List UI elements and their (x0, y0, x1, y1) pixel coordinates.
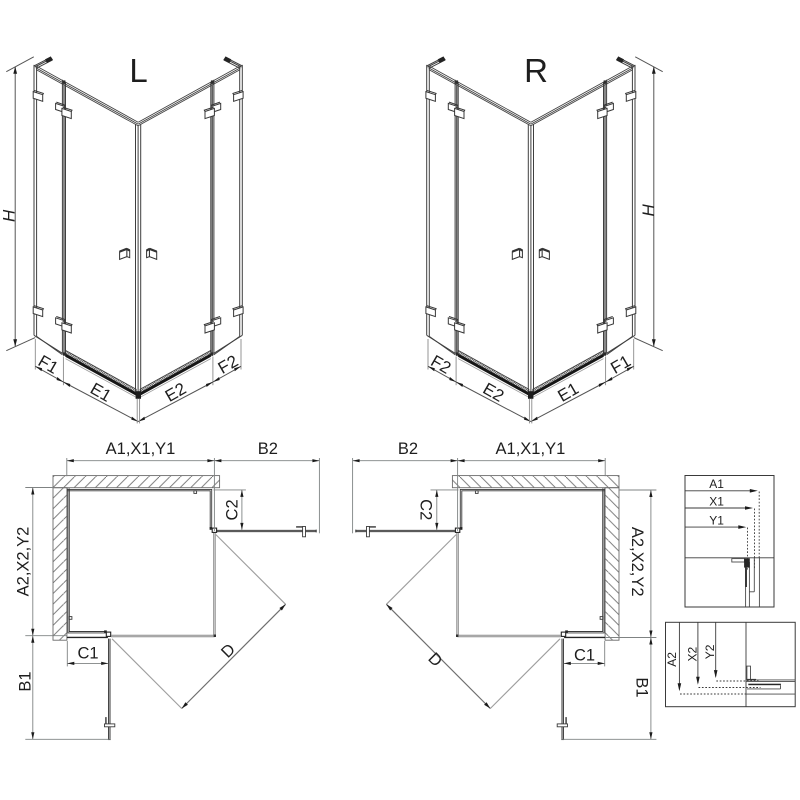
svg-text:B2: B2 (258, 440, 278, 458)
svg-text:F2: F2 (428, 351, 455, 377)
svg-text:Y2: Y2 (703, 644, 717, 659)
svg-text:L: L (129, 52, 147, 89)
svg-text:A2: A2 (665, 652, 679, 667)
svg-text:C1: C1 (574, 647, 595, 665)
svg-text:C2: C2 (224, 499, 242, 520)
svg-text:A2,X2,Y2: A2,X2,Y2 (628, 527, 646, 597)
svg-text:D: D (218, 640, 239, 661)
svg-text:D: D (424, 649, 445, 670)
svg-text:F1: F1 (607, 351, 634, 377)
svg-text:R: R (524, 52, 548, 89)
svg-text:C2: C2 (417, 499, 435, 520)
svg-text:H: H (639, 203, 658, 216)
svg-text:A1,X1,Y1: A1,X1,Y1 (496, 440, 566, 458)
svg-text:B2: B2 (398, 440, 418, 458)
svg-text:B1: B1 (632, 677, 650, 697)
svg-text:B1: B1 (16, 671, 34, 691)
svg-text:F2: F2 (215, 351, 242, 377)
svg-text:X1: X1 (709, 494, 724, 508)
svg-text:Y1: Y1 (709, 513, 724, 527)
svg-text:X2: X2 (685, 647, 699, 662)
svg-text:A1: A1 (709, 477, 724, 491)
svg-text:A1,X1,Y1: A1,X1,Y1 (106, 440, 176, 458)
svg-text:A2,X2,Y2: A2,X2,Y2 (15, 527, 33, 597)
svg-text:C1: C1 (77, 645, 98, 663)
svg-text:F1: F1 (35, 351, 62, 377)
svg-text:H: H (0, 209, 18, 222)
